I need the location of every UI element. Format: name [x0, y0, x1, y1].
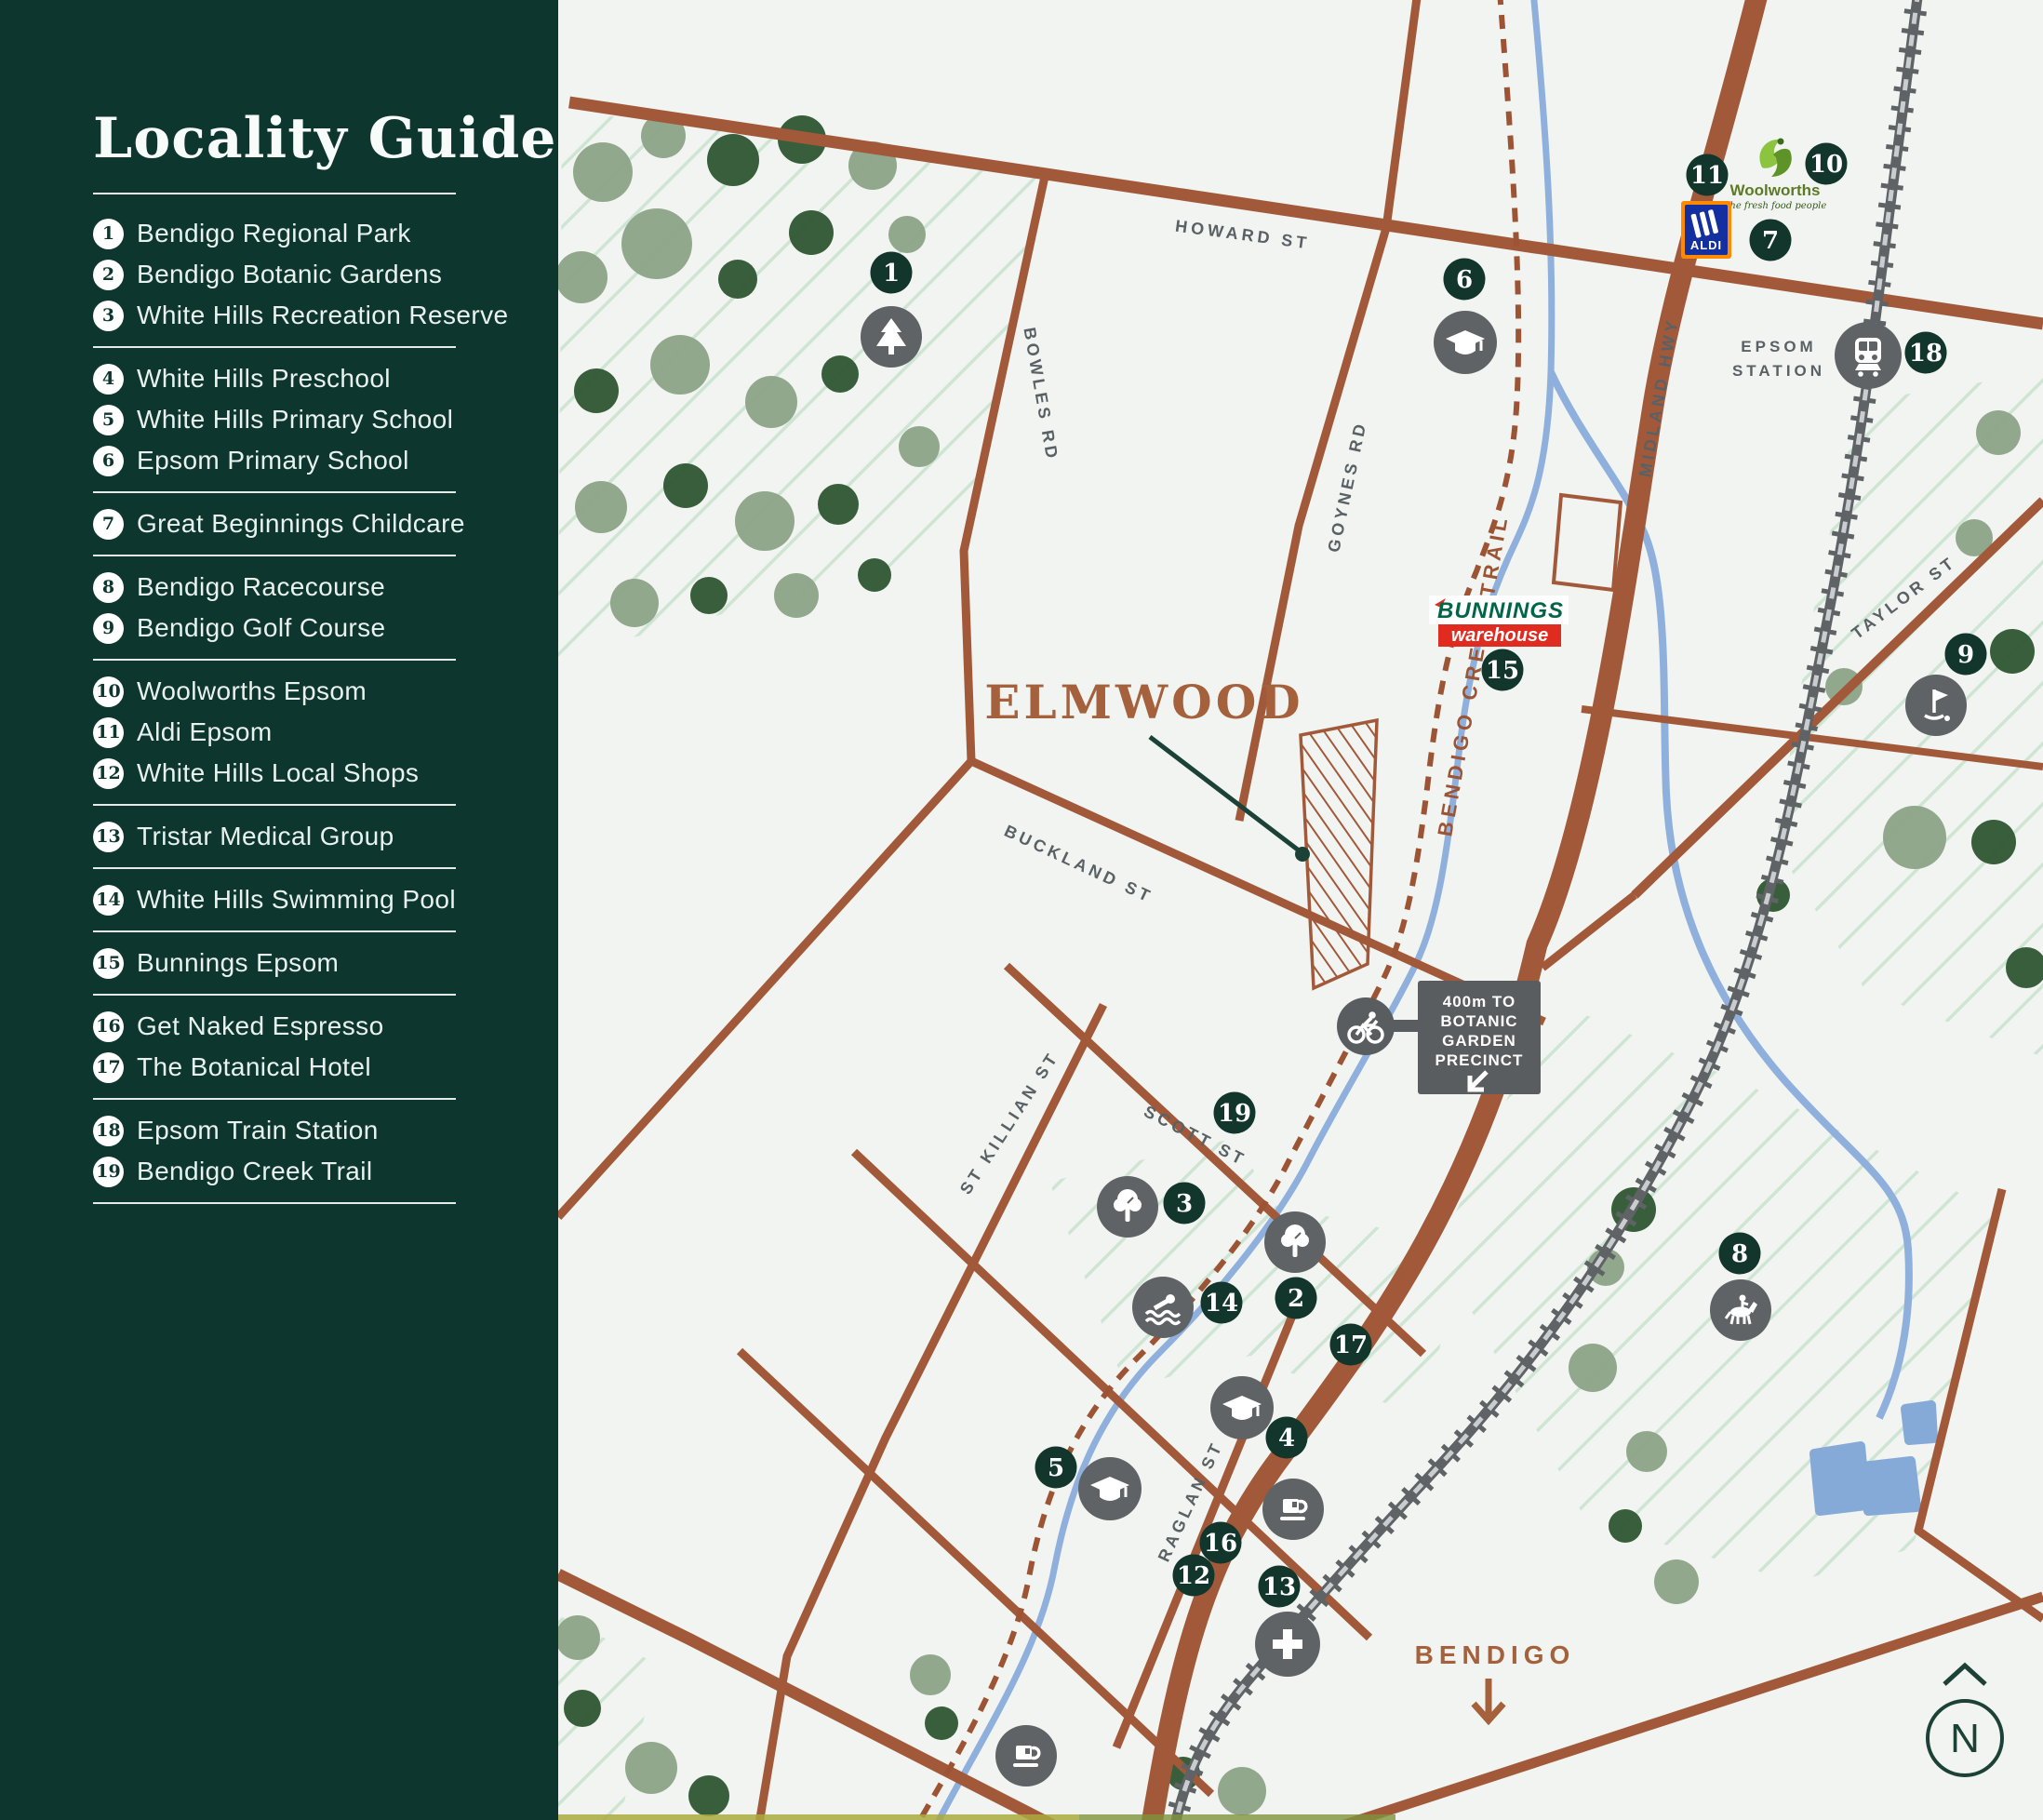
legend-item-number: 6: [93, 446, 124, 476]
map-marker: 4: [1266, 1417, 1308, 1459]
svg-text:5: 5: [1048, 1454, 1064, 1482]
legend-item-number: 14: [93, 885, 124, 916]
legend-separator: [93, 555, 456, 556]
svg-text:11: 11: [1690, 162, 1724, 190]
legend-item: 15Bunnings Epsom: [93, 943, 558, 984]
map-marker: 14: [1201, 1282, 1243, 1324]
legend-item-label: Get Naked Espresso: [137, 1011, 384, 1041]
horse-riding-icon: [1710, 1279, 1771, 1341]
svg-text:15: 15: [1486, 657, 1519, 685]
svg-text:12: 12: [1177, 1562, 1210, 1590]
legend-item-label: Aldi Epsom: [137, 717, 273, 747]
legend-separator: [93, 1202, 456, 1204]
legend-item: 18Epsom Train Station: [93, 1110, 558, 1151]
school-icon: [1078, 1457, 1142, 1520]
legend-item-number: 17: [93, 1052, 124, 1083]
woolworths-wordmark: Woolworths: [1730, 181, 1821, 199]
legend-item: 9Bendigo Golf Course: [93, 608, 558, 649]
legend-item-label: Bendigo Golf Course: [137, 613, 386, 643]
legend-item: 17The Botanical Hotel: [93, 1047, 558, 1088]
svg-text:7: 7: [1762, 227, 1779, 255]
legend-separator: [93, 1098, 456, 1100]
legend-item-number: 2: [93, 260, 124, 290]
coffee-icon: [995, 1725, 1057, 1787]
title-rule: [93, 193, 456, 194]
svg-text:1: 1: [883, 260, 900, 288]
legend-item-label: Bendigo Racecourse: [137, 572, 385, 602]
pine-tree-icon: [861, 306, 922, 368]
map-marker: 17: [1330, 1324, 1372, 1366]
svg-text:13: 13: [1262, 1573, 1296, 1601]
map-marker: 8: [1719, 1233, 1761, 1275]
legend-item-number: 11: [93, 717, 124, 748]
svg-text:2: 2: [1288, 1285, 1304, 1313]
legend-item-label: White Hills Local Shops: [137, 758, 419, 788]
legend-item-label: White Hills Primary School: [137, 405, 453, 435]
legend-item-number: 1: [93, 219, 124, 249]
legend-item-number: 13: [93, 822, 124, 852]
sidebar: Locality Guide 1Bendigo Regional Park2Be…: [0, 0, 558, 1820]
legend-item: 19Bendigo Creek Trail: [93, 1151, 558, 1192]
legend-item-label: Epsom Primary School: [137, 446, 409, 475]
legend-item: 8Bendigo Racecourse: [93, 567, 558, 608]
svg-text:8: 8: [1731, 1240, 1748, 1268]
legend-item-number: 9: [93, 613, 124, 644]
north-label: N: [1950, 1716, 1980, 1761]
svg-text:4: 4: [1278, 1425, 1295, 1452]
tree-icon: [1264, 1211, 1326, 1273]
legend-item: 3White Hills Recreation Reserve: [93, 295, 558, 336]
woolworths-tagline: The fresh food people: [1724, 201, 1827, 211]
epsom-station-label-line1: EPSOM: [1741, 338, 1816, 355]
map-marker: 15: [1482, 649, 1524, 691]
legend-item-label: Bendigo Regional Park: [137, 219, 411, 248]
map-marker: 11: [1687, 154, 1729, 196]
legend-item: 5White Hills Primary School: [93, 399, 558, 440]
svg-text:18: 18: [1909, 340, 1943, 368]
map-marker: 19: [1214, 1092, 1256, 1134]
legend-item-number: 15: [93, 948, 124, 979]
bottom-strip: [558, 1814, 1395, 1820]
legend-separator: [93, 346, 456, 348]
school-icon: [1434, 311, 1497, 374]
legend-item-number: 3: [93, 301, 124, 331]
aldi-wordmark: ALDI: [1690, 238, 1722, 252]
map-marker: 9: [1945, 634, 1987, 676]
legend-item: 2Bendigo Botanic Gardens: [93, 254, 558, 295]
svg-text:GARDEN: GARDEN: [1442, 1032, 1516, 1050]
legend-item-number: 18: [93, 1116, 124, 1146]
legend-separator: [93, 994, 456, 996]
legend-item-number: 4: [93, 364, 124, 395]
swim-icon: [1132, 1277, 1194, 1338]
legend-separator: [93, 930, 456, 932]
map-marker: 12: [1173, 1555, 1215, 1597]
svg-text:BOTANIC: BOTANIC: [1440, 1012, 1517, 1030]
aldi-logo: ALDI: [1681, 201, 1731, 259]
bunnings-logo: BUNNINGS warehouse: [1429, 596, 1569, 647]
bunnings-warehouse-wordmark: warehouse: [1451, 625, 1548, 646]
svg-text:19: 19: [1218, 1100, 1251, 1128]
legend-separator: [93, 804, 456, 806]
legend-item-number: 12: [93, 758, 124, 789]
school-icon: [1210, 1376, 1274, 1439]
legend-item-label: Epsom Train Station: [137, 1116, 379, 1145]
map-marker: 7: [1750, 220, 1792, 261]
legend-item-label: Bunnings Epsom: [137, 948, 339, 978]
legend-item: 6Epsom Primary School: [93, 440, 558, 481]
locality-guide-page: Locality Guide 1Bendigo Regional Park2Be…: [0, 0, 2043, 1820]
map-marker: 2: [1275, 1278, 1317, 1319]
legend-item-number: 16: [93, 1011, 124, 1042]
legend-item-label: Tristar Medical Group: [137, 822, 394, 851]
svg-text:400m TO: 400m TO: [1443, 993, 1516, 1010]
svg-text:17: 17: [1334, 1332, 1368, 1359]
bendigo-label: BENDIGO: [1415, 1640, 1576, 1669]
legend-item-number: 8: [93, 572, 124, 603]
legend-item: 13Tristar Medical Group: [93, 816, 558, 857]
legend-item-number: 5: [93, 405, 124, 435]
map-marker: 3: [1164, 1183, 1206, 1224]
legend-item: 14White Hills Swimming Pool: [93, 879, 558, 920]
legend-item-label: Bendigo Creek Trail: [137, 1157, 373, 1186]
legend-item-number: 19: [93, 1157, 124, 1187]
map-marker: 10: [1806, 143, 1848, 185]
golf-icon: [1905, 675, 1967, 736]
legend-item-label: Woolworths Epsom: [137, 676, 367, 706]
legend-separator: [93, 491, 456, 493]
legend-item: 4White Hills Preschool: [93, 358, 558, 399]
page-title: Locality Guide: [93, 110, 558, 168]
tree-icon: [1097, 1176, 1158, 1238]
legend-item-label: White Hills Swimming Pool: [137, 885, 456, 915]
legend-item-label: Great Beginnings Childcare: [137, 509, 465, 539]
legend-item-label: Bendigo Botanic Gardens: [137, 260, 442, 289]
legend-separator: [93, 659, 456, 661]
elmwood-label: ELMWOOD: [984, 675, 1303, 729]
legend-item: 1Bendigo Regional Park: [93, 213, 558, 254]
map-marker: 16: [1200, 1522, 1242, 1564]
legend-item-label: The Botanical Hotel: [137, 1052, 371, 1082]
map-marker: 13: [1259, 1566, 1301, 1608]
legend-item-number: 10: [93, 676, 124, 707]
cyclist-icon: [1337, 997, 1395, 1055]
medical-cross-icon: [1255, 1612, 1320, 1677]
legend-item: 11Aldi Epsom: [93, 712, 558, 753]
map-area: HOWARD ST BOWLES RD GOYNES RD MIDLAND HW…: [558, 0, 2043, 1820]
epsom-station-label-line2: STATION: [1732, 362, 1825, 380]
legend-item-label: White Hills Preschool: [137, 364, 391, 394]
svg-text:10: 10: [1809, 151, 1843, 179]
legend-list: 1Bendigo Regional Park2Bendigo Botanic G…: [93, 213, 558, 1204]
legend-item-label: White Hills Recreation Reserve: [137, 301, 508, 330]
svg-text:14: 14: [1205, 1290, 1238, 1318]
bunnings-wordmark: BUNNINGS: [1437, 598, 1564, 623]
map-marker: 18: [1905, 332, 1947, 374]
map-marker: 5: [1035, 1447, 1077, 1489]
legend-item-number: 7: [93, 509, 124, 540]
svg-text:16: 16: [1204, 1530, 1237, 1558]
svg-text:PRECINCT: PRECINCT: [1435, 1051, 1524, 1069]
legend-separator: [93, 867, 456, 869]
legend-item: 16Get Naked Espresso: [93, 1006, 558, 1047]
elmwood-parcel: [1301, 720, 1377, 988]
coffee-icon: [1262, 1479, 1324, 1540]
legend-item: 7Great Beginnings Childcare: [93, 503, 558, 544]
train-icon: [1835, 322, 1902, 389]
svg-text:9: 9: [1957, 641, 1974, 669]
legend-item: 10Woolworths Epsom: [93, 671, 558, 712]
map-marker: 6: [1444, 259, 1486, 301]
legend-item: 12White Hills Local Shops: [93, 753, 558, 794]
svg-text:6: 6: [1456, 266, 1473, 294]
svg-text:3: 3: [1176, 1190, 1193, 1218]
map-marker: 1: [871, 252, 913, 294]
